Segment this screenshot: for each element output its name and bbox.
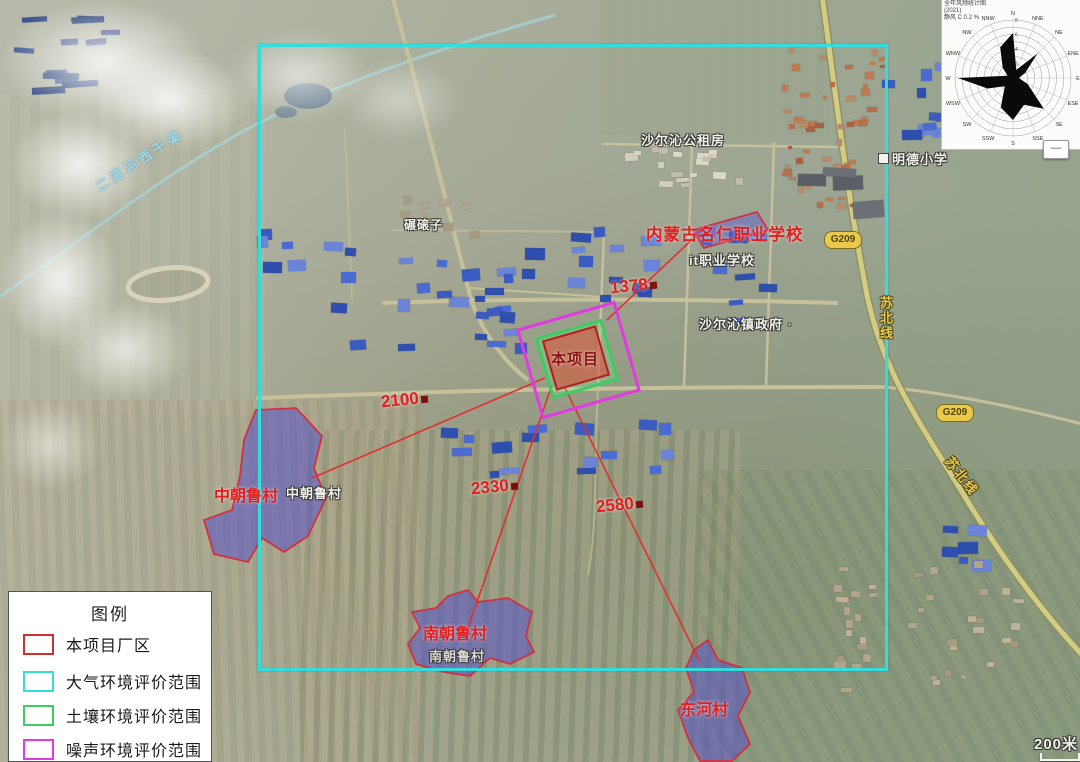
legend-swatch-noise — [23, 739, 54, 760]
wind-rose-direction-label: SE — [1055, 122, 1063, 128]
public-housing-label: 沙尔沁公租房 — [641, 130, 725, 149]
wind-rose-direction-label: W — [945, 76, 951, 82]
cloud — [0, 210, 120, 350]
wind-rose-direction-label: NNW — [982, 16, 996, 22]
legend-item-project: 本项目厂区 — [9, 632, 151, 656]
cloud — [0, 0, 210, 125]
town-government-label: 沙尔沁镇政府 · — [699, 314, 793, 333]
cloud — [60, 300, 190, 400]
legend-item-soil: 土壤环境评价范围 — [9, 703, 202, 727]
wind-rose-ring-label: 4 — [1015, 47, 1018, 53]
wind-rose-direction-label: S — [1011, 141, 1015, 147]
mingde-school-label: 明德小学 — [878, 149, 948, 168]
wind-rose-ring-label: 8 — [1015, 18, 1018, 24]
wind-rose-direction-label: N — [1011, 11, 1015, 17]
legend-panel: 图例 本项目厂区 大气环境评价范围 土壤环境评价范围 噪声环境评价范围 — [8, 591, 212, 762]
wind-rose-chart: NNNENEENEEESESESSESSSWSWWSWWWNWNWNNW2468 — [942, 0, 1080, 150]
wind-rose-direction-label: SSW — [982, 136, 995, 142]
g209-route-badge: G209 — [824, 231, 862, 249]
satellite-map-canvas[interactable]: 二道河西干渠 碾磙子 沙尔沁公租房 明德小学 it职业学校 沙尔沁镇政府 · 中… — [0, 0, 1080, 762]
it-school-label: it职业学校 — [689, 250, 755, 269]
village-name-label-red: 东河村 — [680, 696, 728, 720]
cloud — [0, 400, 100, 490]
wind-rose-direction-label: NW — [962, 30, 972, 36]
wind-rose-direction-label: ENE — [1067, 51, 1079, 57]
village-name-label-red: 中朝鲁村 — [214, 482, 278, 506]
project-label: 本项目 — [551, 348, 599, 369]
wind-rose-direction-label: SW — [963, 122, 973, 128]
distance-marker-square — [421, 396, 429, 404]
wind-rose-ring-label: 6 — [1015, 33, 1018, 39]
village-base-label: 中朝鲁村 — [286, 483, 342, 502]
distance-marker-square — [511, 483, 519, 491]
distance-marker-square — [650, 282, 658, 290]
legend-swatch-project — [23, 634, 54, 655]
wind-rose-ring-label: 2 — [1015, 62, 1018, 68]
village-base-label: 南朝鲁村 — [429, 646, 485, 665]
panel-collapse-button[interactable]: — — [1043, 140, 1069, 159]
racetrack-oval — [127, 264, 210, 304]
canal-name-label: 二道河西干渠 — [91, 124, 187, 195]
legend-item-air: 大气环境评价范围 — [9, 669, 202, 693]
wind-rose-panel: 全年风频统计图 (2021) 静风 C 0.2 % NNNENEENEEESES… — [941, 0, 1080, 150]
scale-bar — [1040, 753, 1080, 761]
village-name-label: 碾磙子 — [404, 216, 443, 233]
legend-item-noise: 噪声环境评价范围 — [9, 737, 202, 761]
wind-rose-direction-label: ESE — [1068, 101, 1079, 107]
legend-swatch-soil — [23, 705, 54, 726]
village-name-label-red: 南朝鲁村 — [423, 620, 487, 644]
vocational-school-label: 内蒙古名仁职业学校 — [646, 221, 804, 245]
farmland-texture — [0, 95, 265, 415]
wind-rose-direction-label: NE — [1055, 30, 1063, 36]
wind-rose-direction-label: WNW — [946, 51, 961, 57]
legend-swatch-air — [23, 671, 54, 692]
school-icon — [878, 153, 889, 164]
wind-rose-direction-label: E — [1076, 76, 1080, 82]
road-name-label: 苏北线 — [941, 452, 984, 499]
g209-route-badge: G209 — [936, 404, 974, 422]
wind-rose-direction-label: NNE — [1032, 16, 1044, 22]
distance-marker-square — [636, 501, 644, 509]
legend-title: 图例 — [9, 600, 211, 625]
road-name-label: 苏北线 — [876, 296, 895, 341]
wind-rose-direction-label: WSW — [946, 101, 961, 107]
scale-label: 200米 — [1034, 733, 1078, 754]
